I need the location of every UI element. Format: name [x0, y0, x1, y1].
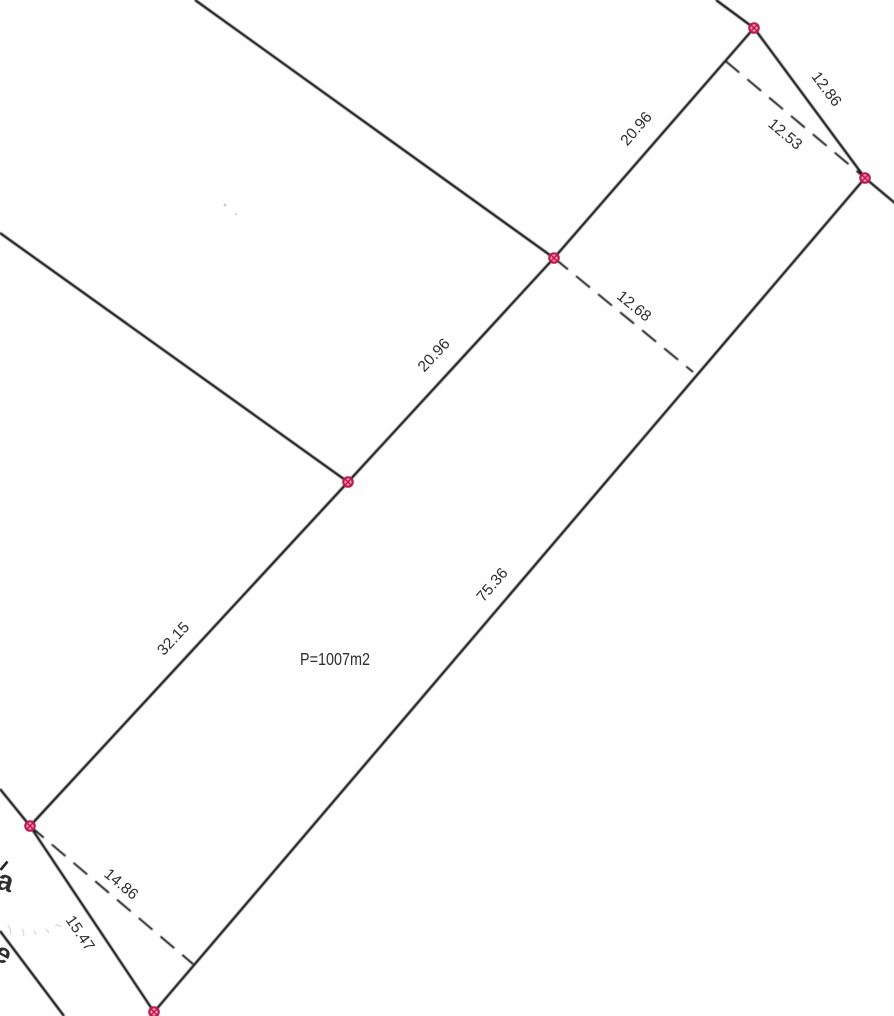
svg-text:P=1007m2: P=1007m2 [300, 650, 370, 670]
